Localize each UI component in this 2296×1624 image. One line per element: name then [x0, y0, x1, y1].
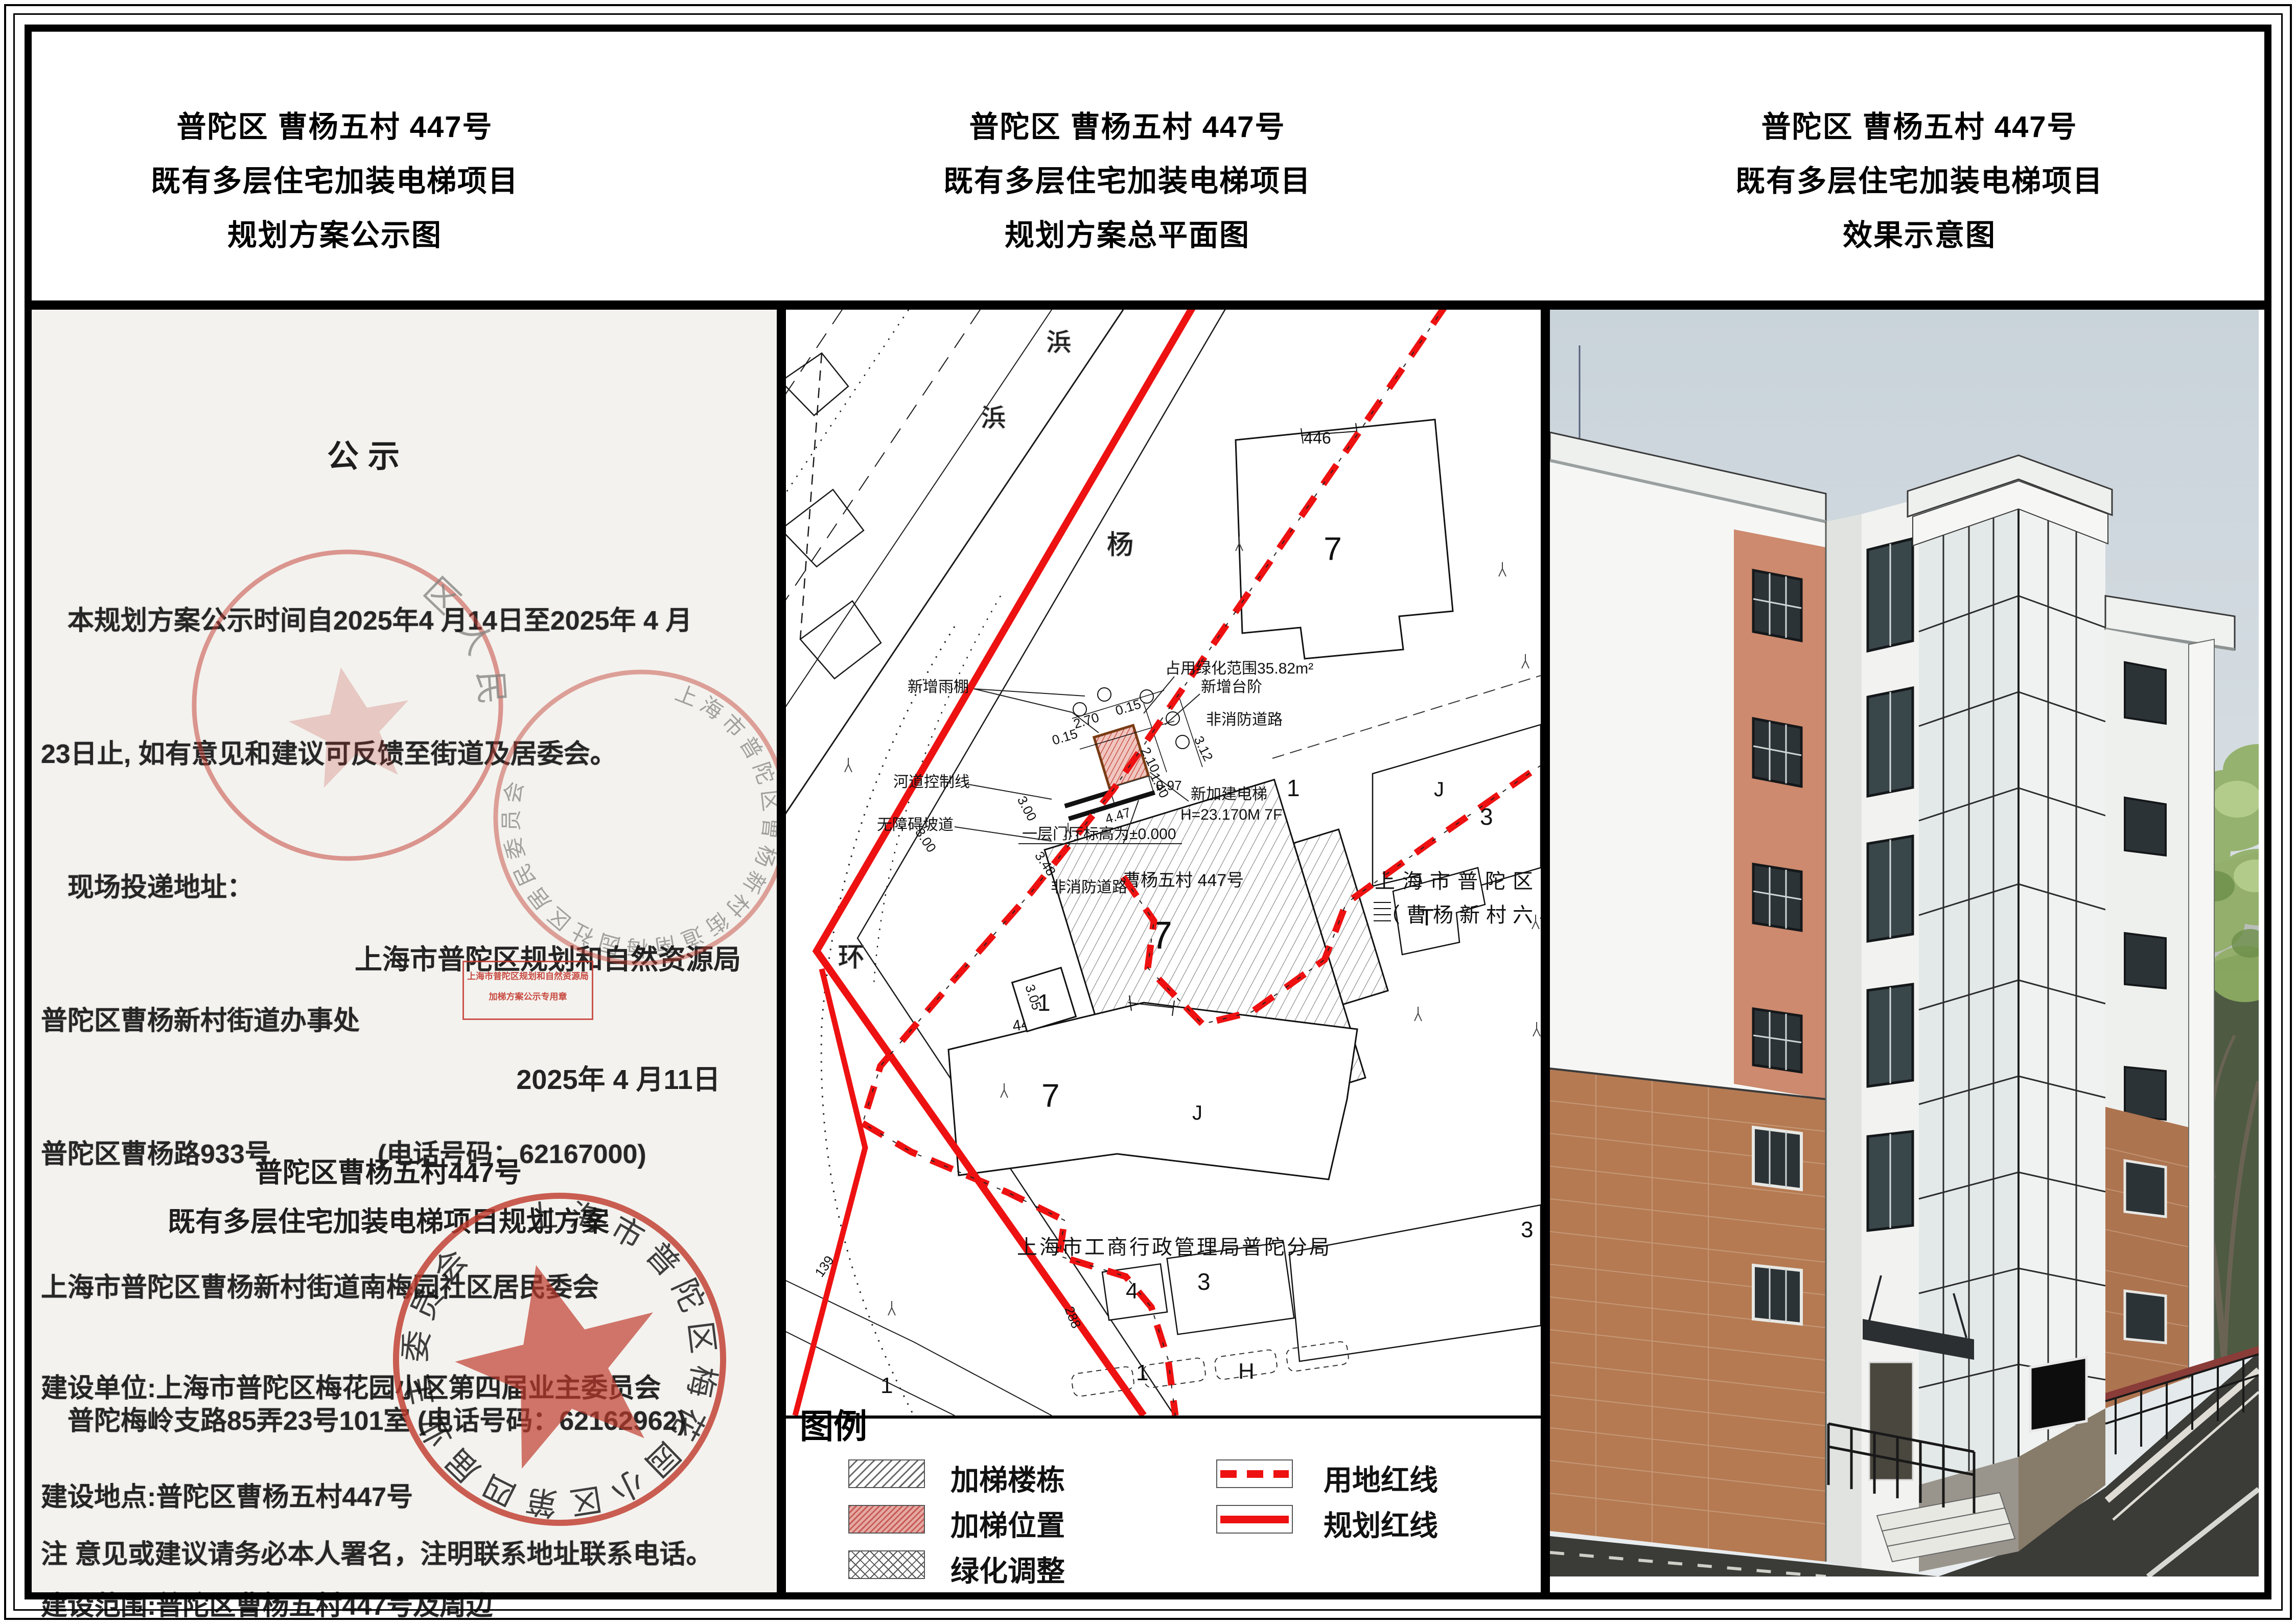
- frame-outer: [4, 4, 2292, 1620]
- announcement-board: 普陀区 曹杨五村 447号 既有多层住宅加装电梯项目 规划方案公示图 普陀区 曹…: [0, 0, 2296, 1624]
